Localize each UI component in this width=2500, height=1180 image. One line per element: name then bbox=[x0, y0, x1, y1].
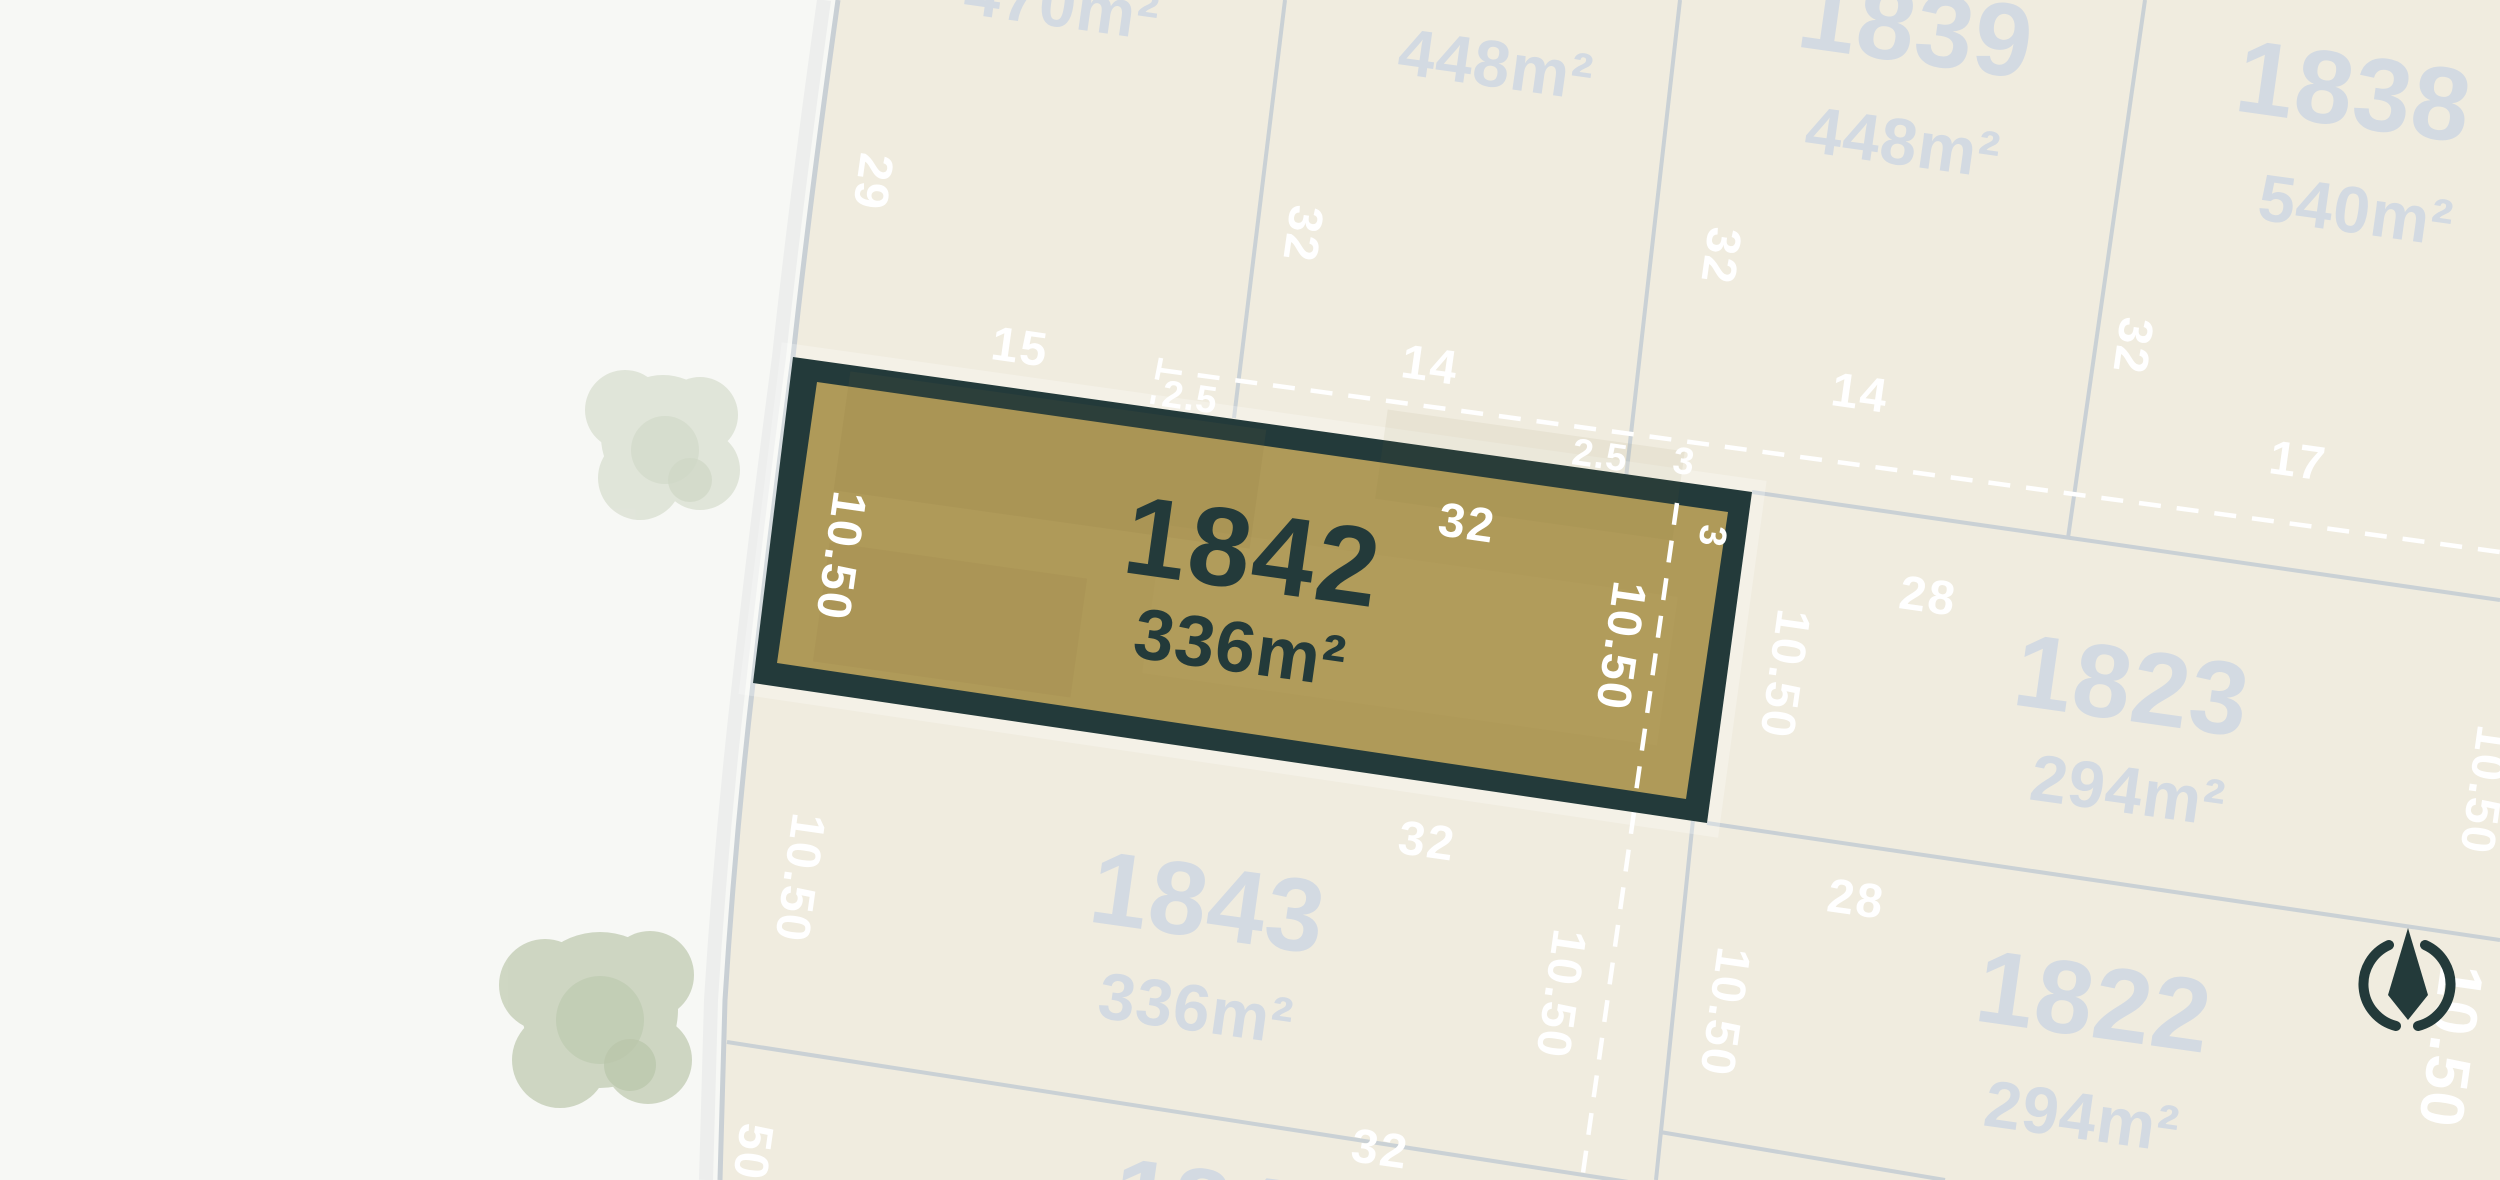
north-compass bbox=[0, 0, 2500, 1180]
masterplan-map: 1842 336m² 470m²448m²1839448m²1838540m²2… bbox=[0, 0, 2500, 1180]
